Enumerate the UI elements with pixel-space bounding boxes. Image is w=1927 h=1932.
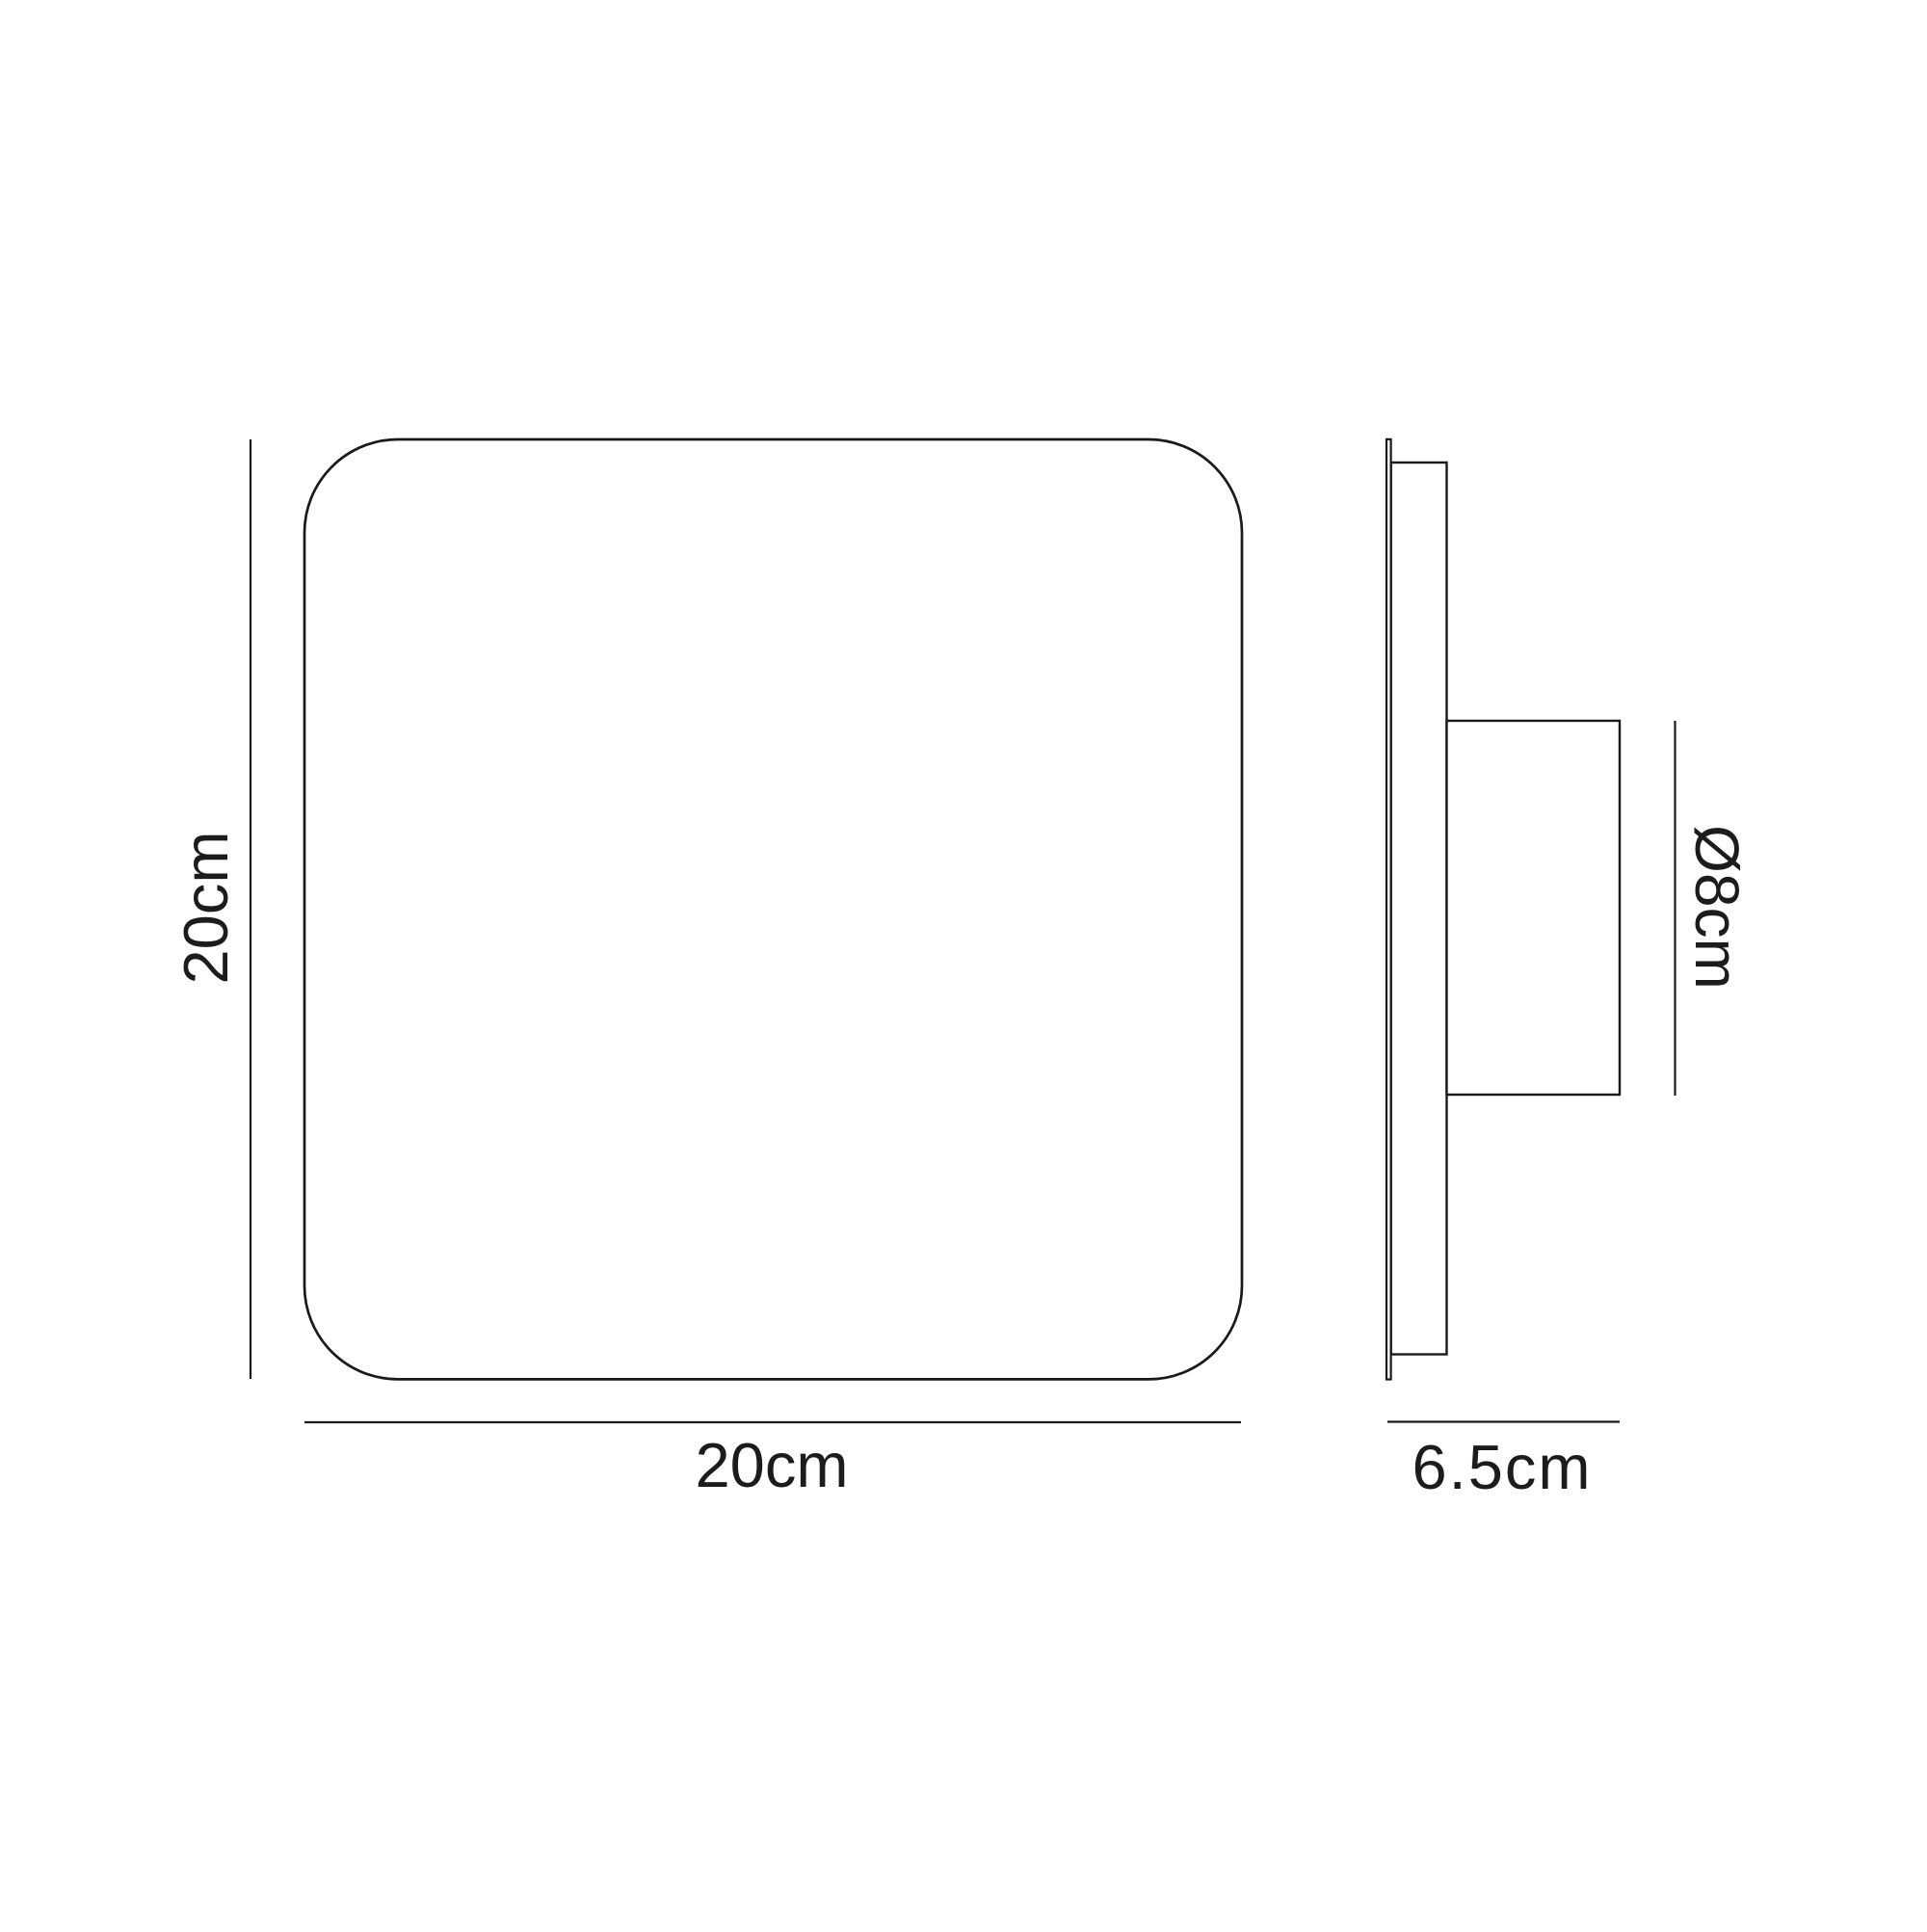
svg-text:20cm: 20cm	[696, 1430, 849, 1500]
svg-text:Ø8cm: Ø8cm	[1682, 825, 1752, 990]
svg-text:20cm: 20cm	[171, 832, 241, 985]
svg-text:6.5cm: 6.5cm	[1412, 1432, 1592, 1502]
